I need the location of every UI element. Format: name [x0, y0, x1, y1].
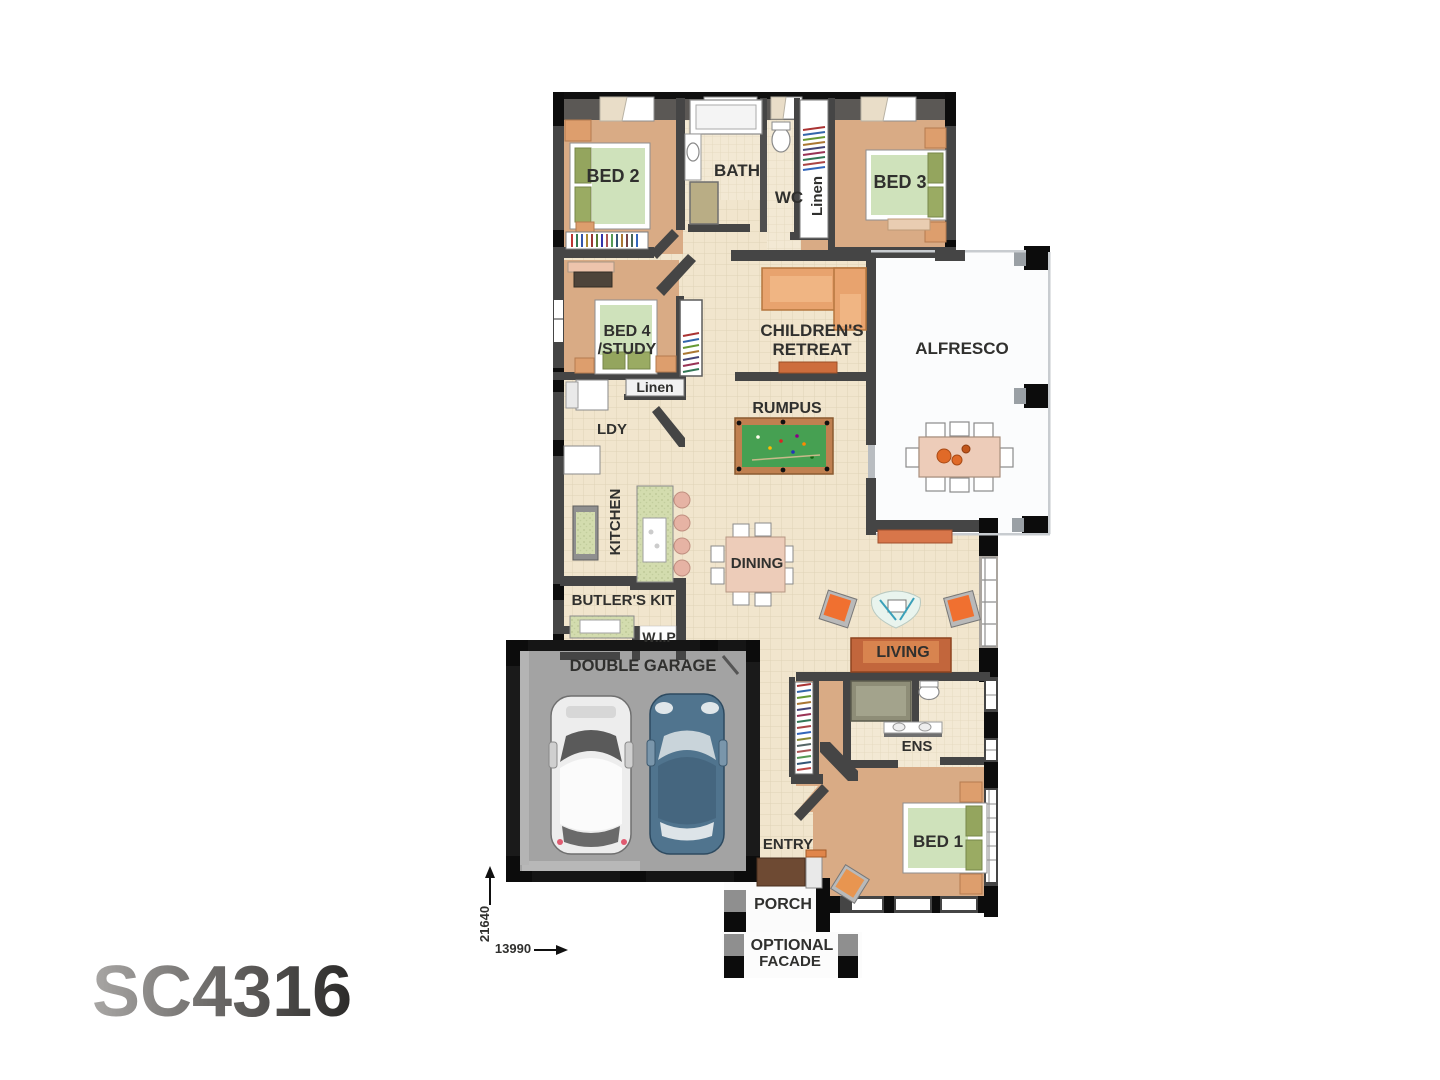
svg-text:BUTLER'S KIT: BUTLER'S KIT — [572, 592, 675, 609]
svg-text:LDY: LDY — [597, 421, 627, 438]
svg-text:13990: 13990 — [495, 941, 531, 956]
svg-text:21640: 21640 — [477, 906, 492, 942]
svg-text:BED 2: BED 2 — [586, 166, 639, 186]
svg-text:RUMPUS: RUMPUS — [752, 400, 822, 417]
svg-text:ENS: ENS — [902, 738, 933, 755]
svg-text:KITCHEN: KITCHEN — [607, 489, 624, 556]
svg-text:FACADE: FACADE — [759, 953, 821, 970]
svg-text:RETREAT: RETREAT — [772, 340, 852, 359]
svg-text:Linen: Linen — [809, 176, 826, 216]
svg-text:SC4316: SC4316 — [92, 952, 352, 1032]
svg-text:OPTIONAL: OPTIONAL — [751, 937, 834, 954]
svg-text:CHILDREN'S: CHILDREN'S — [760, 321, 863, 340]
svg-text:W.I.P: W.I.P — [642, 629, 675, 645]
svg-text:LIVING: LIVING — [876, 644, 929, 661]
svg-text:DINING: DINING — [731, 555, 784, 572]
svg-text:PORCH: PORCH — [754, 896, 812, 913]
svg-text:/STUDY: /STUDY — [598, 341, 657, 358]
svg-text:Linen: Linen — [636, 379, 673, 395]
svg-text:WC: WC — [775, 188, 803, 207]
svg-text:BED 4: BED 4 — [603, 323, 650, 340]
svg-text:BED 1: BED 1 — [913, 832, 963, 851]
svg-text:BED 3: BED 3 — [873, 172, 926, 192]
svg-text:DOUBLE GARAGE: DOUBLE GARAGE — [570, 657, 717, 675]
svg-text:ALFRESCO: ALFRESCO — [915, 339, 1009, 358]
svg-text:ENTRY: ENTRY — [763, 836, 813, 853]
svg-text:BATH: BATH — [714, 161, 760, 180]
